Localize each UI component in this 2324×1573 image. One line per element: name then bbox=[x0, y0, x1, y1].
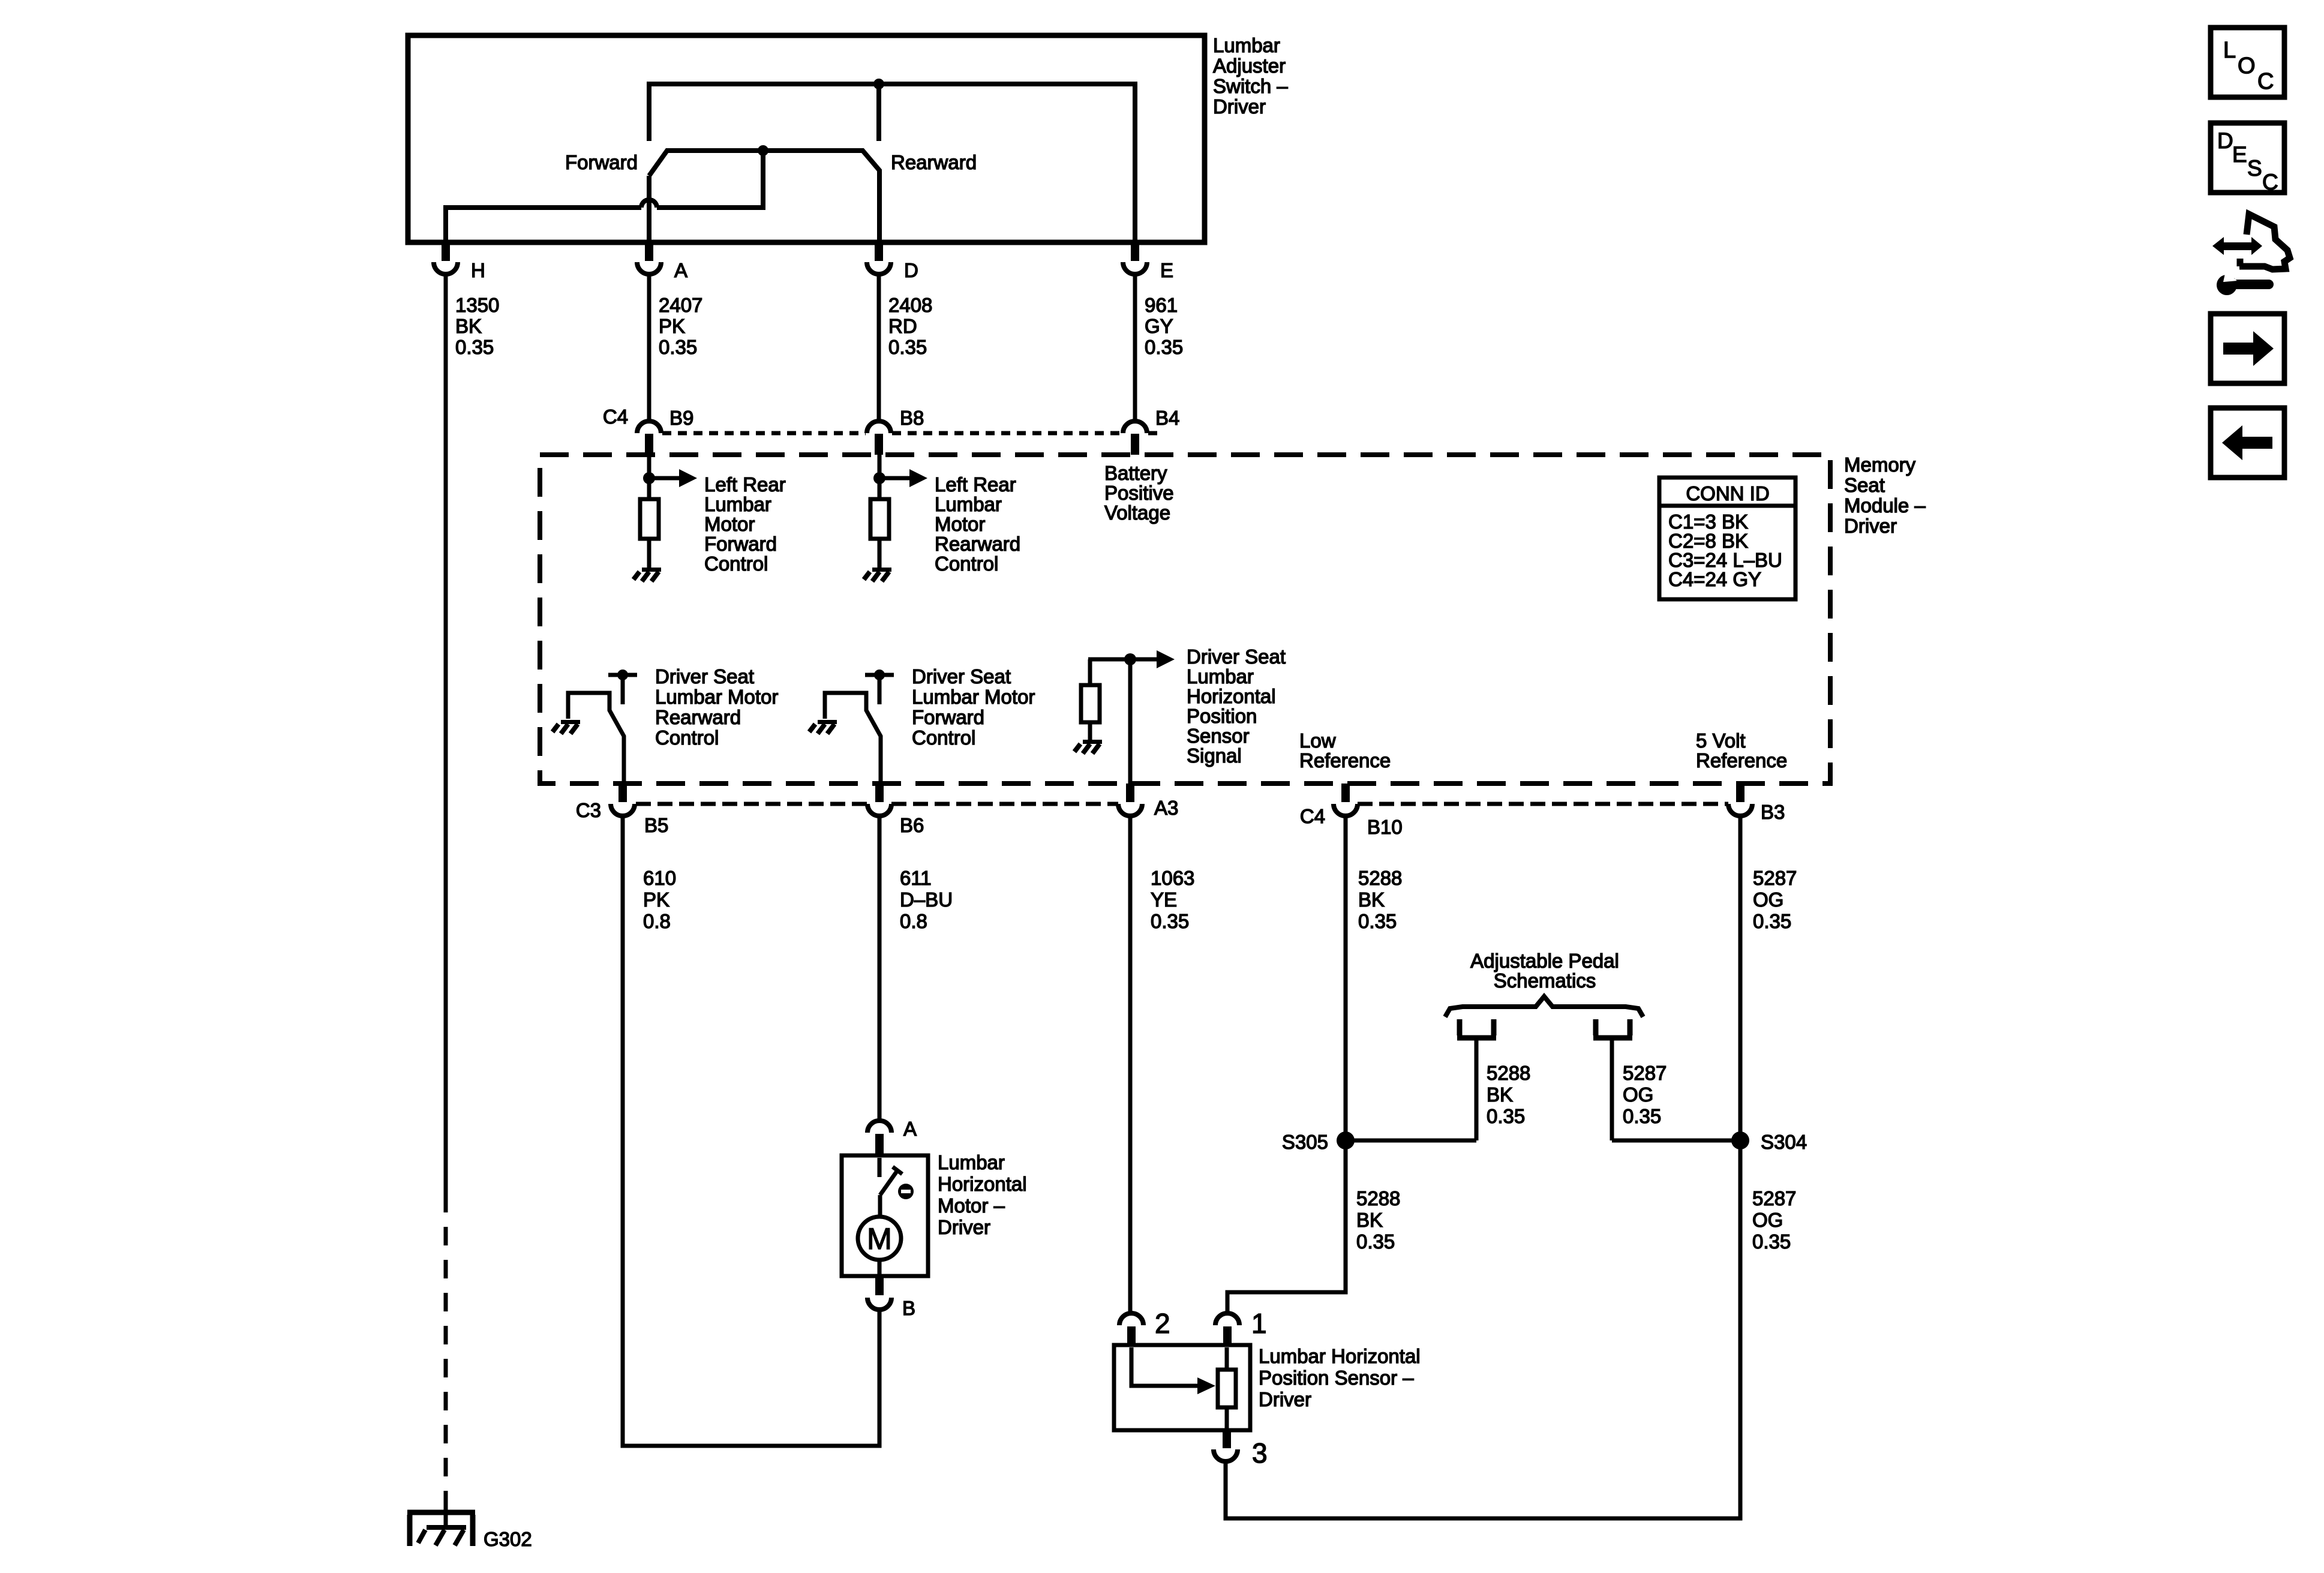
svg-text:C: C bbox=[2262, 170, 2278, 194]
svg-text:C4: C4 bbox=[1300, 805, 1325, 827]
svg-text:1: 1 bbox=[1251, 1308, 1267, 1339]
svg-text:3: 3 bbox=[1252, 1437, 1268, 1469]
svg-text:BatteryPositiveVoltage: BatteryPositiveVoltage bbox=[1104, 462, 1174, 524]
svg-text:Rearward: Rearward bbox=[891, 151, 977, 173]
svg-text:H: H bbox=[471, 259, 485, 281]
svg-text:C3: C3 bbox=[576, 799, 601, 821]
svg-text:G302: G302 bbox=[484, 1528, 532, 1550]
svg-text:C: C bbox=[2257, 69, 2274, 94]
svg-text:S305: S305 bbox=[1282, 1131, 1328, 1153]
svg-text:B8: B8 bbox=[900, 407, 924, 429]
svg-text:CONN ID: CONN ID bbox=[1686, 482, 1769, 505]
svg-text:Forward: Forward bbox=[565, 151, 638, 173]
svg-text:E: E bbox=[1160, 259, 1173, 281]
svg-text:D: D bbox=[904, 259, 918, 281]
svg-text:Schematics: Schematics bbox=[1494, 969, 1596, 992]
svg-text:L: L bbox=[2223, 38, 2236, 63]
svg-text:Adjustable Pedal: Adjustable Pedal bbox=[1470, 950, 1619, 972]
svg-text:B4: B4 bbox=[1155, 407, 1179, 429]
svg-text:B5: B5 bbox=[644, 814, 668, 836]
svg-text:S304: S304 bbox=[1761, 1131, 1807, 1153]
svg-text:2: 2 bbox=[1155, 1308, 1170, 1339]
svg-text:O: O bbox=[2238, 53, 2256, 79]
svg-text:S: S bbox=[2247, 156, 2262, 181]
svg-text:E: E bbox=[2232, 142, 2247, 167]
svg-text:A: A bbox=[903, 1118, 917, 1140]
svg-text:B9: B9 bbox=[669, 407, 693, 429]
svg-text:M: M bbox=[867, 1222, 892, 1256]
svg-text:B6: B6 bbox=[900, 814, 924, 836]
svg-text:D: D bbox=[2217, 128, 2233, 153]
svg-text:B3: B3 bbox=[1761, 801, 1785, 823]
svg-text:A: A bbox=[674, 259, 687, 281]
svg-text:A3: A3 bbox=[1154, 797, 1178, 819]
svg-text:C4: C4 bbox=[603, 406, 628, 428]
svg-text:B: B bbox=[902, 1297, 915, 1319]
svg-text:B10: B10 bbox=[1367, 816, 1403, 838]
